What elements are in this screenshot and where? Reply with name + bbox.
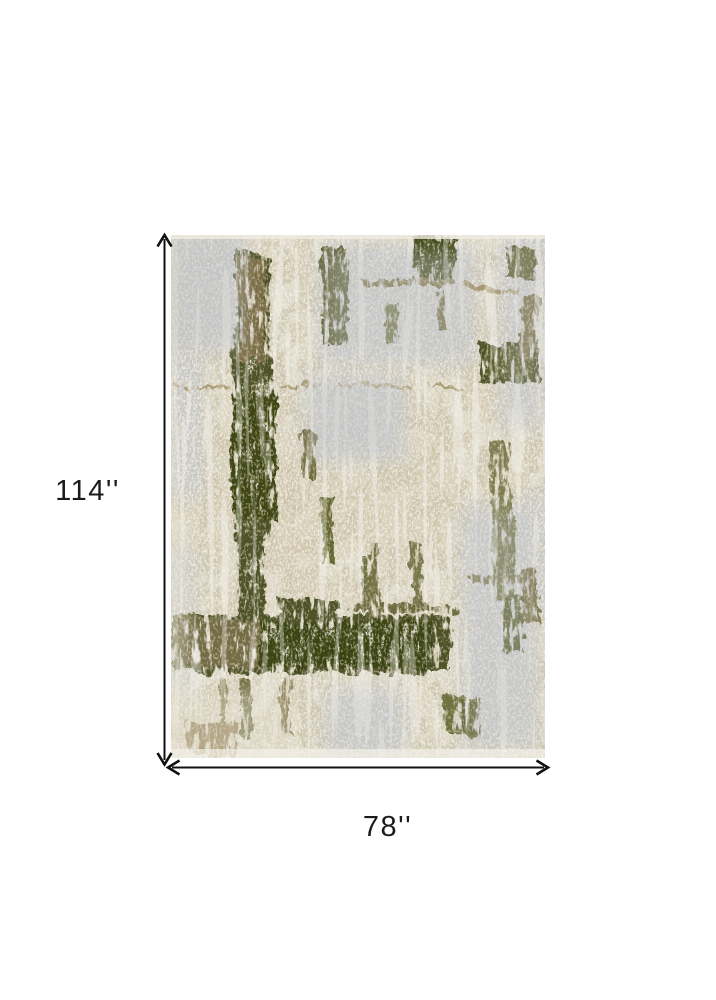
svg-text:114'': 114'': [55, 475, 120, 507]
svg-text:78'': 78'': [363, 811, 412, 843]
